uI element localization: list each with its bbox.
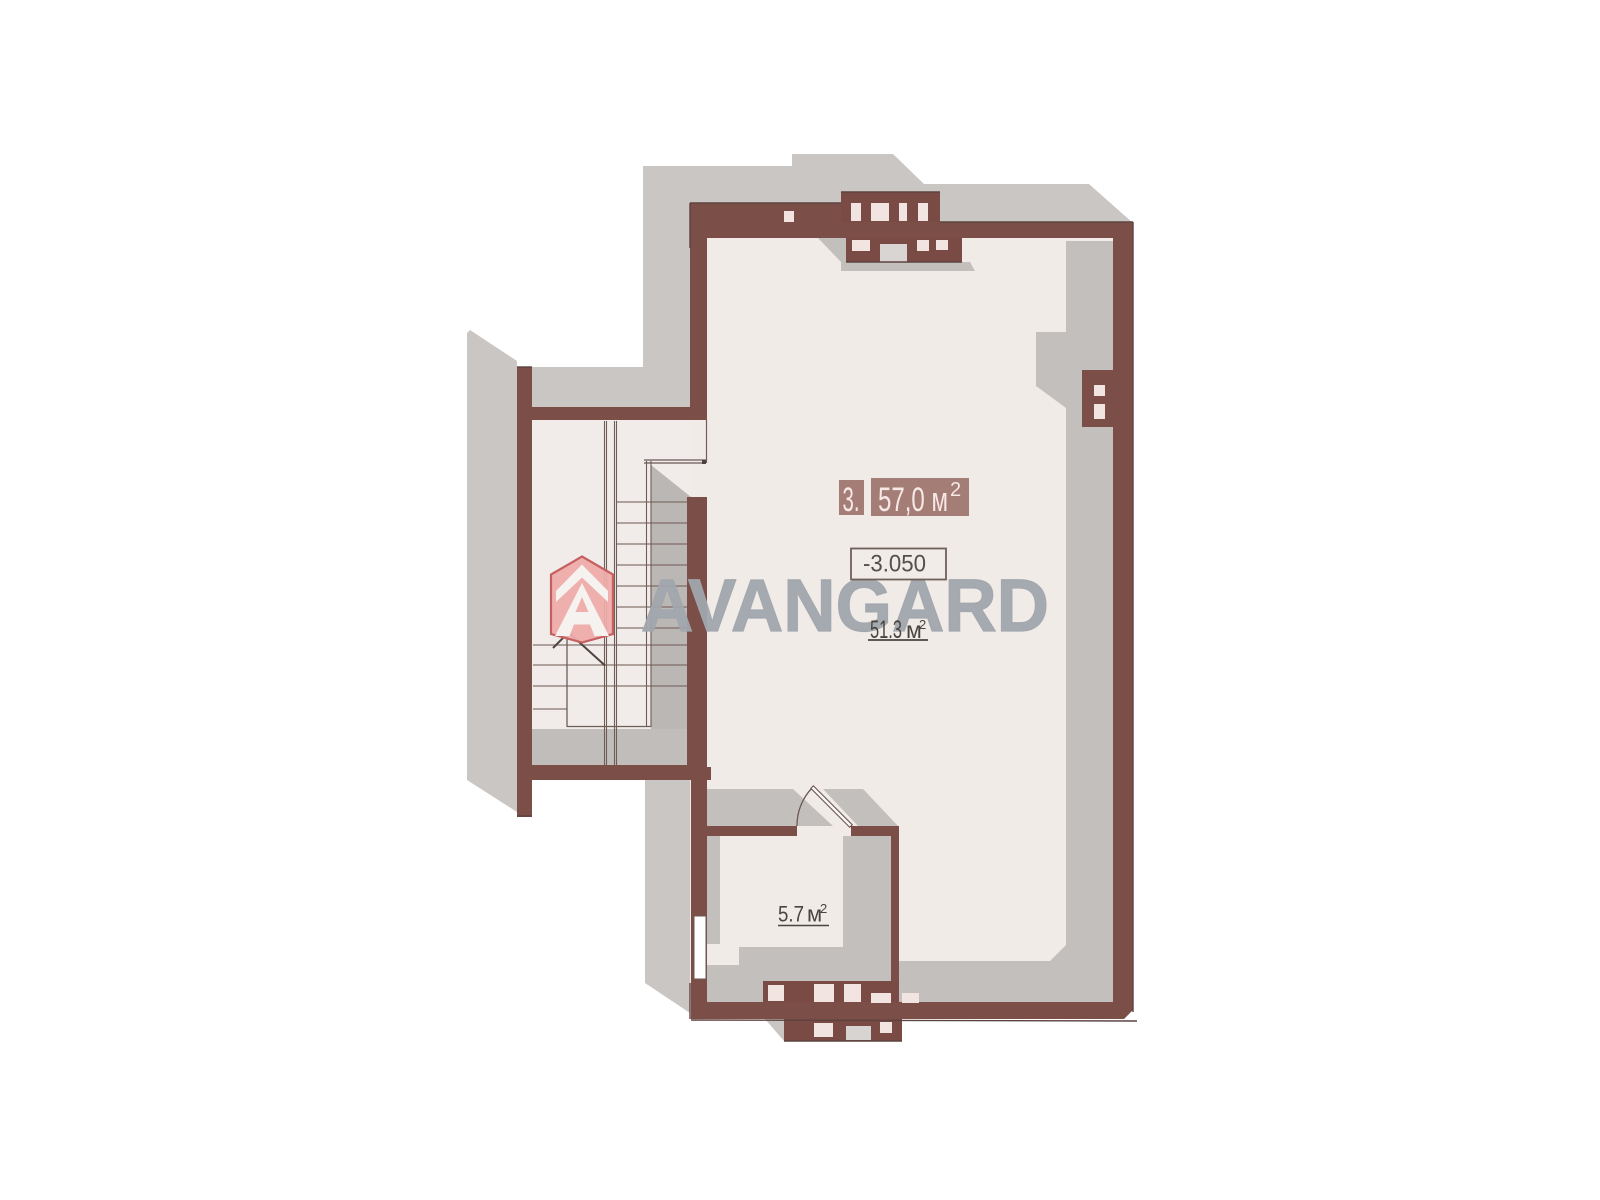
svg-text:2: 2 xyxy=(919,617,926,632)
svg-text:2: 2 xyxy=(820,901,827,916)
svg-text:AVANGARD: AVANGARD xyxy=(641,564,1049,647)
svg-text:5.7: 5.7 xyxy=(778,902,804,927)
svg-text:3.: 3. xyxy=(843,481,860,519)
svg-text:57,0 м: 57,0 м xyxy=(878,481,948,519)
svg-text:-3.050: -3.050 xyxy=(863,551,926,578)
svg-text:2: 2 xyxy=(950,479,961,501)
